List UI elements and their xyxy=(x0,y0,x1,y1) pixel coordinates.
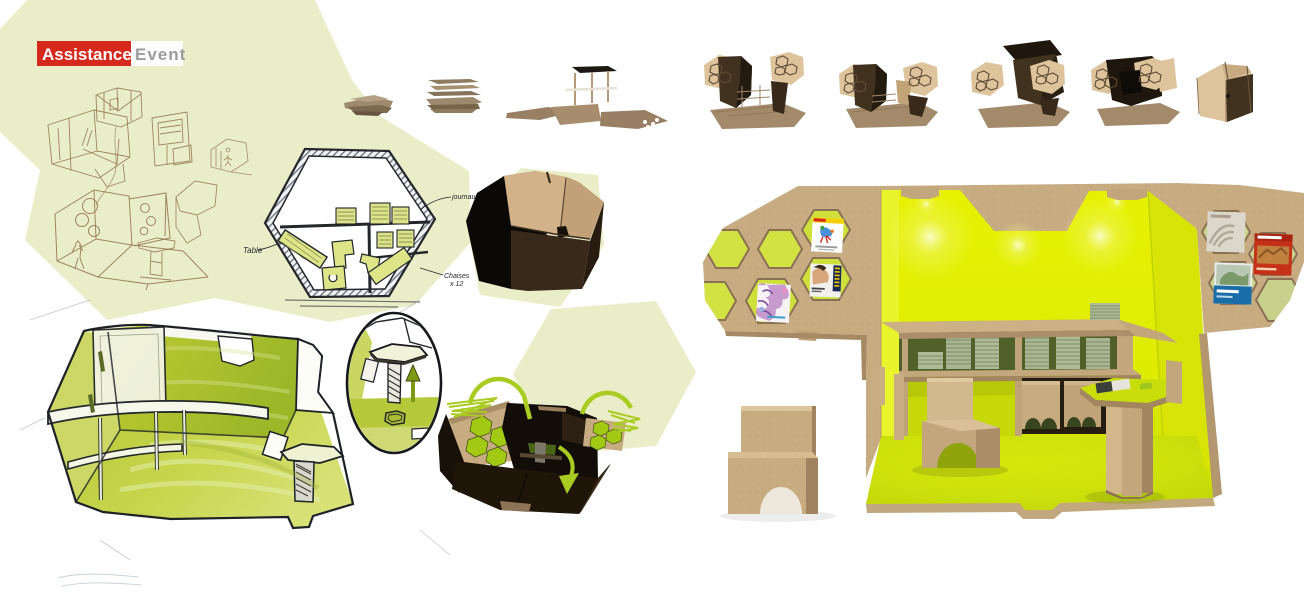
svg-text:Event: Event xyxy=(135,45,186,64)
svg-text:Assistance: Assistance xyxy=(42,45,132,64)
svg-text:x 12: x 12 xyxy=(449,281,463,288)
svg-text:Table: Table xyxy=(243,246,263,255)
svg-text:Chaises: Chaises xyxy=(444,273,470,280)
